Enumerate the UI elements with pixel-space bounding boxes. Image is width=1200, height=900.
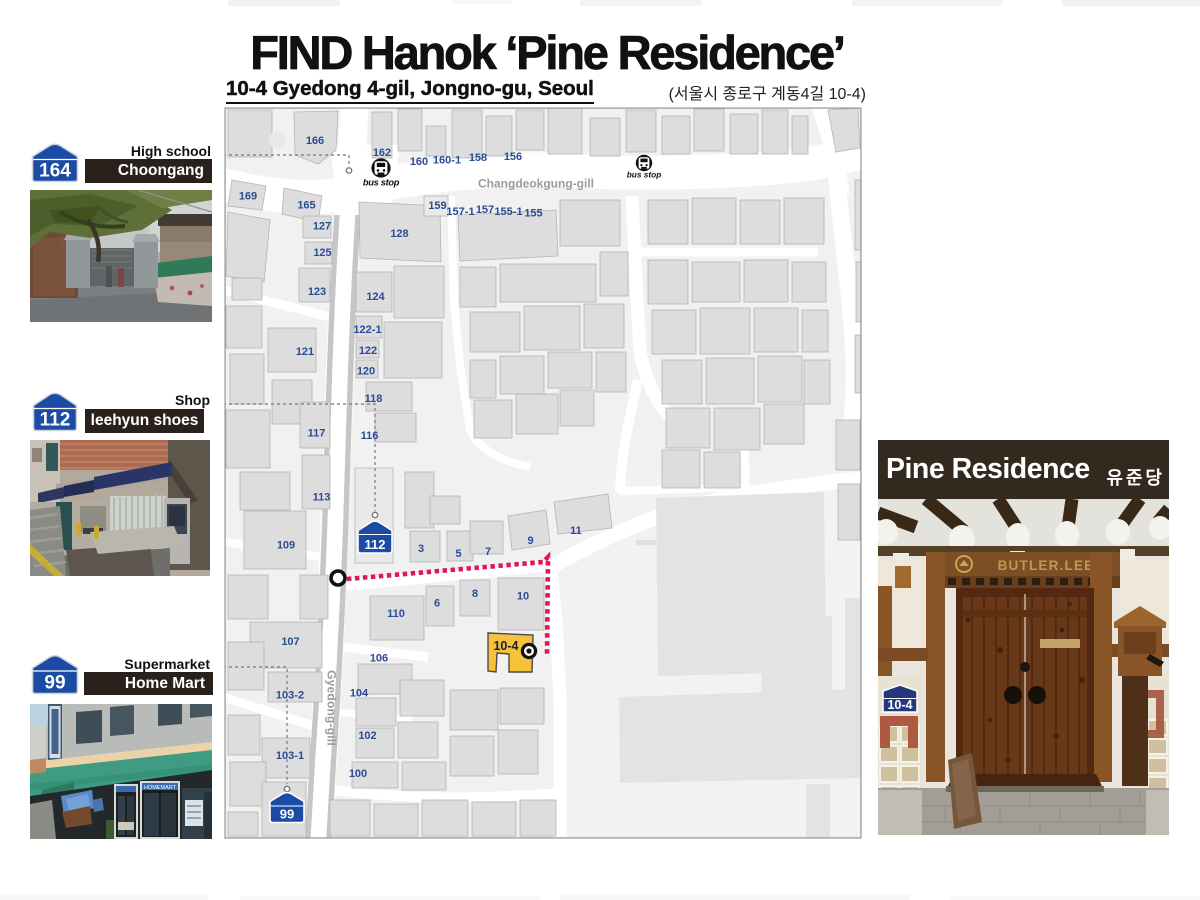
- svg-text:10: 10: [517, 591, 529, 603]
- svg-text:158: 158: [469, 152, 487, 164]
- svg-text:bus stop: bus stop: [363, 178, 400, 188]
- svg-text:123: 123: [308, 286, 326, 298]
- svg-text:166: 166: [306, 135, 324, 147]
- svg-text:11: 11: [570, 525, 582, 537]
- svg-text:10-4: 10-4: [493, 639, 518, 653]
- svg-text:118: 118: [365, 393, 383, 405]
- svg-text:127: 127: [313, 221, 331, 233]
- svg-text:99: 99: [280, 807, 294, 822]
- svg-text:8: 8: [472, 588, 478, 600]
- svg-text:104: 104: [350, 688, 369, 700]
- svg-text:117: 117: [308, 428, 326, 440]
- svg-text:100: 100: [349, 768, 367, 780]
- svg-text:124: 124: [366, 291, 385, 303]
- svg-text:Gyedong-gill: Gyedong-gill: [325, 670, 339, 746]
- svg-text:HOMEMART: HOMEMART: [144, 785, 177, 791]
- svg-text:165: 165: [297, 200, 315, 212]
- svg-text:157-1: 157-1: [446, 206, 474, 218]
- svg-text:122-1: 122-1: [353, 324, 381, 336]
- svg-text:160-1: 160-1: [433, 155, 461, 167]
- svg-text:103-2: 103-2: [276, 690, 304, 702]
- svg-text:159: 159: [428, 200, 446, 212]
- svg-text:164: 164: [39, 161, 71, 182]
- svg-text:7: 7: [485, 546, 491, 558]
- svg-text:155-1: 155-1: [494, 206, 522, 218]
- svg-text:120: 120: [357, 366, 375, 378]
- svg-text:157: 157: [476, 204, 494, 216]
- svg-text:155: 155: [524, 208, 542, 220]
- svg-text:160: 160: [410, 156, 428, 168]
- svg-text:107: 107: [281, 636, 299, 648]
- svg-text:125: 125: [313, 247, 331, 259]
- svg-text:bus stop: bus stop: [627, 170, 662, 180]
- svg-text:169: 169: [239, 191, 257, 203]
- svg-text:112: 112: [40, 410, 71, 431]
- svg-text:3: 3: [418, 543, 424, 555]
- svg-text:5: 5: [455, 548, 461, 560]
- svg-text:110: 110: [387, 608, 405, 620]
- svg-text:99: 99: [44, 673, 65, 694]
- svg-text:BUTLER.LEE: BUTLER.LEE: [998, 558, 1095, 573]
- svg-text:156: 156: [504, 151, 522, 163]
- svg-text:106: 106: [370, 653, 388, 665]
- svg-text:103-1: 103-1: [276, 750, 304, 762]
- svg-text:102: 102: [358, 730, 376, 742]
- svg-text:112: 112: [365, 537, 386, 552]
- svg-text:116: 116: [361, 430, 379, 442]
- svg-text:128: 128: [390, 228, 408, 240]
- svg-text:122: 122: [359, 345, 377, 357]
- svg-text:113: 113: [313, 492, 331, 504]
- svg-text:6: 6: [434, 598, 440, 610]
- svg-text:9: 9: [527, 535, 533, 547]
- svg-text:109: 109: [277, 540, 295, 552]
- svg-text:121: 121: [296, 346, 314, 358]
- svg-text:10-4: 10-4: [887, 698, 912, 712]
- svg-text:162: 162: [373, 147, 391, 159]
- svg-text:Changdeokgung-gill: Changdeokgung-gill: [478, 177, 594, 191]
